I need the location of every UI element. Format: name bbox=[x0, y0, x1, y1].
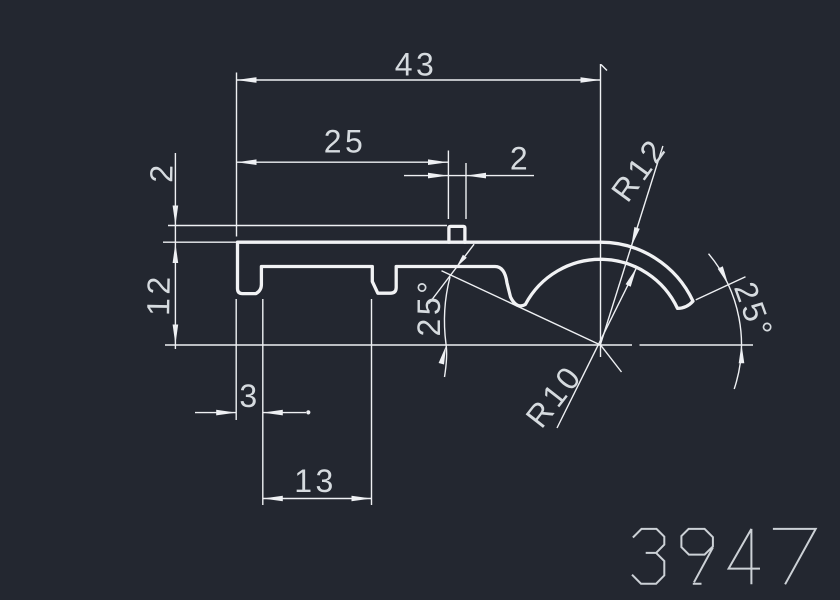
svg-text:2: 2 bbox=[510, 141, 531, 177]
svg-text:2: 2 bbox=[143, 161, 179, 183]
svg-text:3: 3 bbox=[239, 378, 260, 414]
svg-text:43: 43 bbox=[395, 47, 438, 83]
svg-text:12: 12 bbox=[140, 273, 177, 316]
svg-text:13: 13 bbox=[294, 463, 337, 499]
svg-text:25°: 25° bbox=[411, 278, 447, 337]
svg-text:25: 25 bbox=[324, 124, 367, 160]
